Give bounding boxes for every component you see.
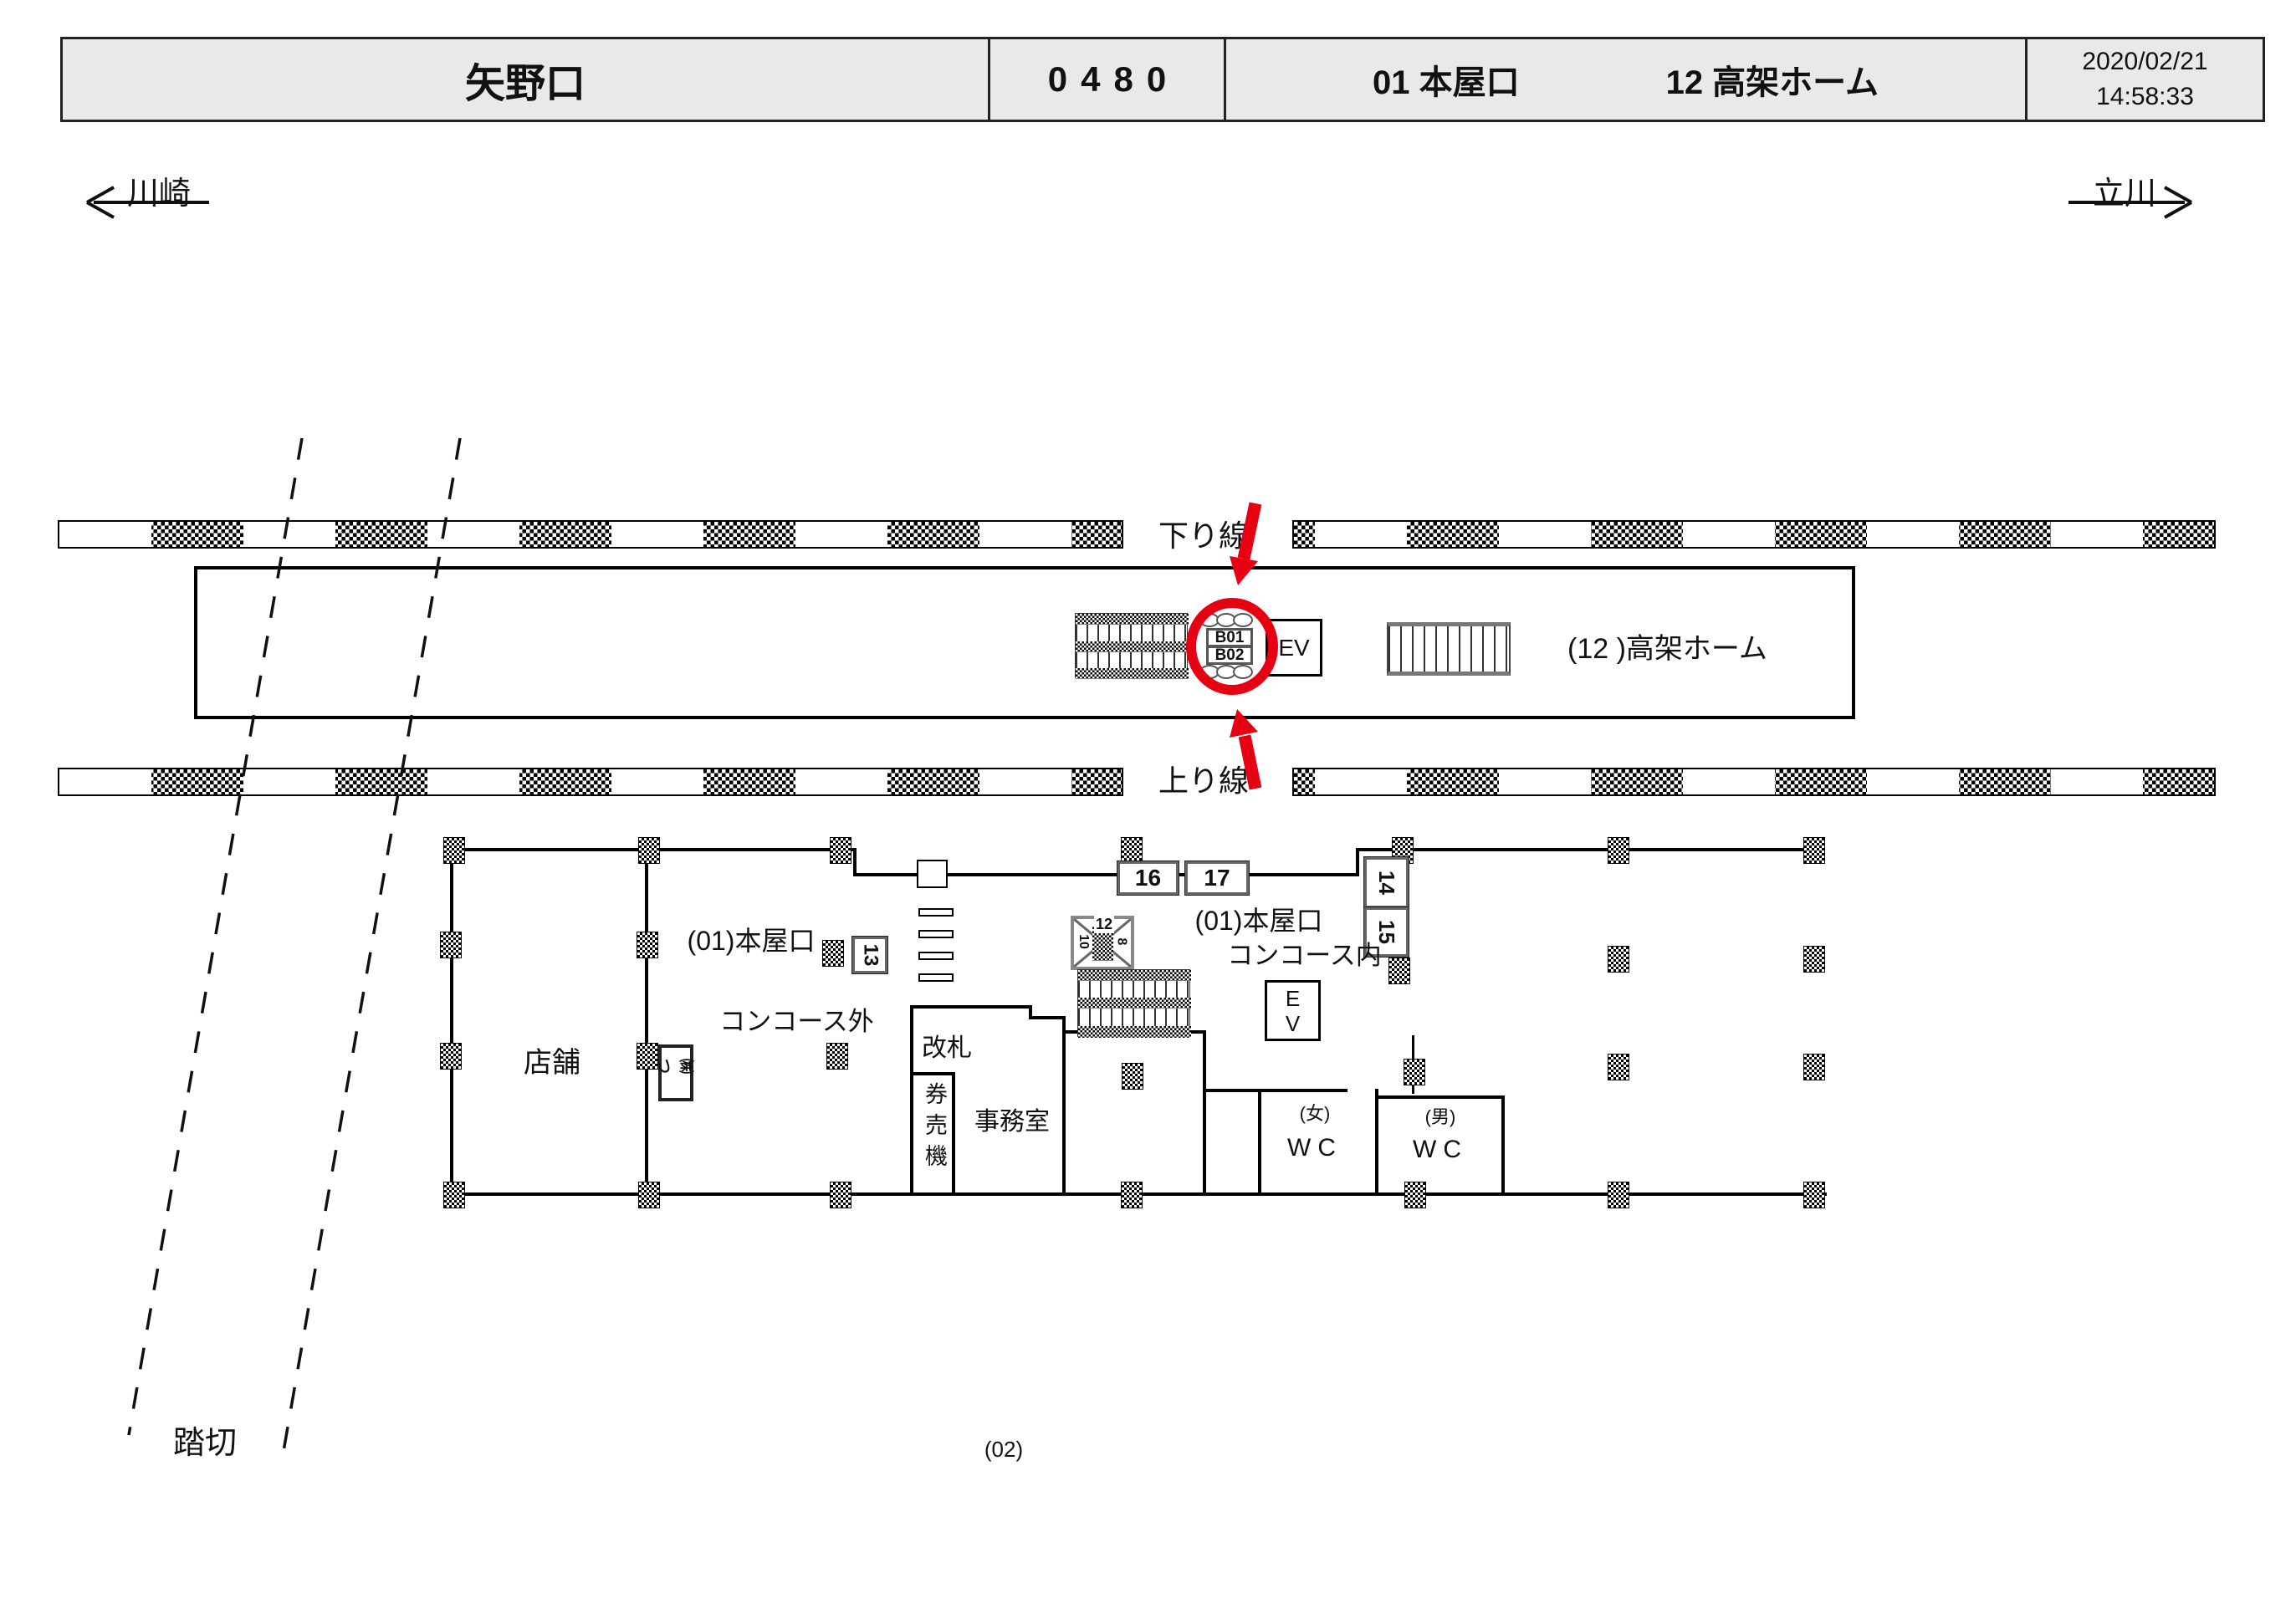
landing-dot	[1233, 665, 1253, 679]
gate-lane	[918, 952, 954, 960]
ad-spot-b02: B02	[1206, 646, 1253, 665]
platform-elevator-box: EV	[1266, 619, 1322, 677]
wall	[1375, 1089, 1378, 1196]
wall	[1029, 1016, 1066, 1019]
down-track-left-segment	[58, 520, 1123, 549]
pillar	[1121, 1182, 1143, 1208]
pillar	[443, 837, 465, 864]
ad-spot-17: 17	[1185, 861, 1249, 895]
gate-lane	[918, 973, 954, 982]
pillar	[1803, 946, 1825, 973]
shop-label: 店舗	[468, 1039, 636, 1080]
concourse-elevator-box: E V	[1265, 980, 1321, 1041]
pillar	[830, 837, 851, 864]
pillar	[440, 932, 462, 958]
station-code: 0480	[988, 39, 1224, 120]
wall	[1258, 1089, 1261, 1196]
direction-left-label: 川崎	[109, 167, 209, 213]
elevator-letter-e: E	[1286, 986, 1300, 1011]
stair-junction-box: 12 10 8	[1071, 916, 1134, 970]
ad-spot-14: 14	[1364, 857, 1409, 908]
wall	[910, 1072, 913, 1196]
wall	[1356, 848, 1359, 876]
platform-stairs-east	[1387, 622, 1511, 676]
wall	[910, 1005, 913, 1075]
gate-lane	[918, 930, 954, 938]
wall	[910, 1072, 955, 1075]
wall	[1356, 848, 1824, 851]
wall-shop-divider	[645, 848, 648, 1196]
pillar	[1803, 1054, 1825, 1080]
wall	[910, 1005, 1032, 1009]
wall	[450, 848, 453, 1198]
wall	[1062, 1016, 1066, 1196]
wc-female-label: WC	[1281, 1134, 1348, 1162]
header-platform-label: 12 高架ホーム	[1666, 55, 1879, 104]
pillar	[1608, 1182, 1629, 1208]
station-name: 矢野口	[63, 39, 988, 120]
ad-spot-16: 16	[1117, 861, 1179, 895]
entrance-out-title: (01)本屋口	[667, 920, 835, 958]
gate-lane	[918, 908, 954, 917]
concourse-out-label: コンコース外	[694, 1000, 899, 1038]
ticket-gate-label: 改札	[922, 1027, 972, 1064]
wall	[1375, 1095, 1505, 1099]
pillar	[1803, 837, 1825, 864]
pillar	[1404, 1059, 1425, 1085]
down-track-right-segment	[1292, 520, 2216, 549]
landing-dot	[1233, 613, 1253, 627]
wall	[1205, 1089, 1347, 1092]
wall	[1501, 1095, 1505, 1196]
pillar	[1404, 1182, 1426, 1208]
stair-num-10: 10	[1076, 934, 1091, 949]
pillar	[638, 1182, 660, 1208]
stair-num-12: 12	[1094, 916, 1114, 933]
pillar	[1608, 946, 1629, 973]
header-time: 14:58:33	[2096, 79, 2194, 115]
wc-female-tag: (女)	[1281, 1099, 1348, 1126]
pillar	[1803, 1182, 1825, 1208]
entrance-in-title: (01)本屋口	[1175, 900, 1342, 938]
header-date: 2020/02/21	[2082, 44, 2207, 79]
pillar	[826, 1043, 848, 1070]
pillar	[440, 1043, 462, 1070]
wc-male-tag: (男)	[1407, 1102, 1474, 1129]
concourse-stairs	[1077, 969, 1190, 1037]
pillar	[1122, 1063, 1143, 1090]
pillar	[1121, 837, 1143, 864]
entrance-door	[917, 860, 948, 888]
elevator-letter-v: V	[1286, 1011, 1300, 1036]
up-line-label: 上り線	[1158, 757, 1250, 800]
pillar	[830, 1182, 851, 1208]
wc-male-label: WC	[1407, 1136, 1474, 1164]
pillar	[443, 1182, 465, 1208]
ad-spot-13: 13	[852, 937, 887, 973]
pillar	[1608, 837, 1629, 864]
concourse-in-label: コンコース内	[1202, 934, 1407, 972]
crossing-label: 踏切	[155, 1417, 255, 1463]
page-number: (02)	[962, 1437, 1046, 1463]
up-track-right-segment	[1292, 768, 2216, 796]
down-line-label: 下り線	[1158, 512, 1250, 555]
wall	[1203, 1030, 1206, 1196]
wall	[853, 848, 857, 876]
wall	[952, 1072, 955, 1196]
overlay-graphics	[0, 0, 2296, 1624]
direction-right-label: 立川	[2074, 167, 2175, 213]
platform-stairs-west	[1075, 613, 1188, 678]
header-bar: 矢野口 0480 01 本屋口 12 高架ホーム 2020/02/21 14:5…	[60, 37, 2265, 122]
station-diagram-page: 矢野口 0480 01 本屋口 12 高架ホーム 2020/02/21 14:5…	[0, 0, 2296, 1624]
header-entrance-label: 01 本屋口	[1373, 55, 1520, 104]
pillar	[638, 837, 660, 864]
ad-spot-b01: B01	[1206, 628, 1253, 647]
office-label: 事務室	[962, 1101, 1062, 1137]
platform-caption: (12 )高架ホーム	[1567, 626, 1767, 666]
up-track-left-segment	[58, 768, 1123, 796]
pillar	[637, 932, 658, 958]
ticket-machine-label: 券売機	[918, 1082, 951, 1175]
small-sign: ㈱つ	[659, 1045, 693, 1101]
stair-num-8: 8	[1113, 938, 1128, 946]
pillar	[1608, 1054, 1629, 1080]
